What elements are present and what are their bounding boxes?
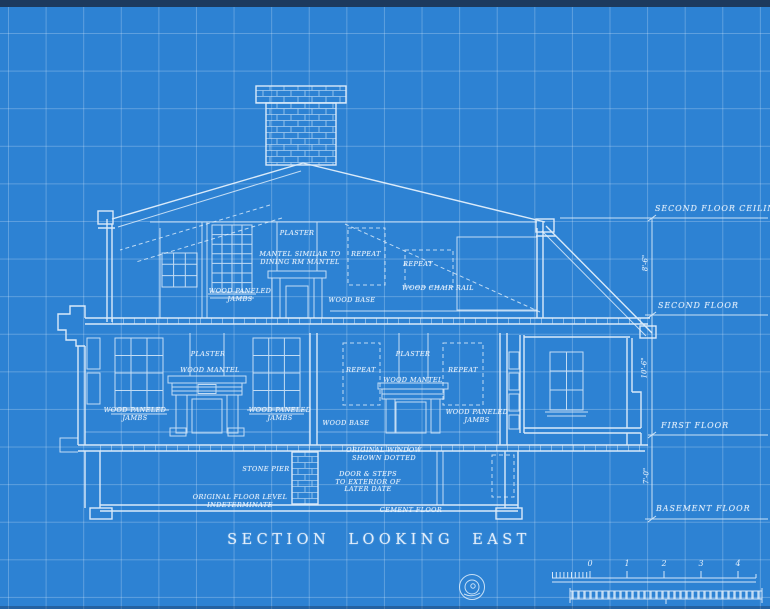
ff-paneled-pilaster-left <box>87 338 100 404</box>
label-ff-repeat-left: REPEAT <box>346 367 376 375</box>
attic-window-small <box>162 253 197 287</box>
label-attic-chair-rail: WOOD CHAIR RAIL <box>402 285 474 293</box>
mid-cornice-profile <box>58 306 85 346</box>
ff-window-left <box>109 338 169 414</box>
label-ff-jambs-left: WOOD PANELED JAMBS <box>104 407 167 422</box>
dimension-basement-height: 7'-0" <box>644 468 651 484</box>
dimension-attic-height: 8'-6" <box>643 255 650 271</box>
scale-bar <box>552 571 762 604</box>
label-first-floor: FIRST FLOOR <box>661 422 729 431</box>
scale-number: 2 <box>661 560 666 568</box>
label-ff-jambs-right: WOOD PANELED JAMBS <box>446 409 509 424</box>
label-ff-plaster-left: PLASTER <box>191 351 226 359</box>
second-floor-line <box>85 318 650 324</box>
label-attic-repeat-left: REPEAT <box>351 251 381 259</box>
scale-number: 4 <box>735 560 740 568</box>
label-ff-repeat-right: REPEAT <box>448 367 478 375</box>
label-ff-plaster-right: PLASTER <box>396 351 431 359</box>
dimension-first-floor-height: 10'-6" <box>642 358 649 379</box>
stamp-emblem <box>460 575 485 600</box>
label-attic-jambs: WOOD PANELED JAMBS <box>209 288 272 303</box>
label-stone-pier: STONE PIER <box>242 466 289 474</box>
label-ff-mantel-left: WOOD MANTEL <box>180 367 239 375</box>
label-original-floor: ORIGINAL FLOOR LEVEL INDETERMINATE <box>193 494 288 509</box>
label-cement-floor: CEMENT FLOOR <box>380 507 442 515</box>
attic-right-panel <box>457 237 537 310</box>
ff-paneled-jamb-right <box>509 352 519 429</box>
chimney <box>256 86 346 165</box>
section-drawing <box>0 0 770 609</box>
ff-wall-right <box>500 333 507 445</box>
label-attic-plaster: PLASTER <box>280 230 315 238</box>
footing-left <box>90 508 112 519</box>
basement-door-frame <box>437 451 443 505</box>
scale-number: 3 <box>698 560 703 568</box>
scale-number: 0 <box>587 560 592 568</box>
ff-partition <box>310 333 317 445</box>
drawing-title: SECTION LOOKING EAST <box>227 532 531 548</box>
label-original-window: ORIGINAL WINDOW SHOWN DOTTED <box>346 447 421 462</box>
basement-dotted-window <box>492 455 514 497</box>
label-second-floor-ceiling: SECOND FLOOR CEILING <box>655 205 770 214</box>
label-ff-jambs-center: WOOD PANELED JAMBS <box>249 407 312 422</box>
label-door-note: DOOR & STEPS TO EXTERIOR OF LATER DATE <box>335 471 400 494</box>
blueprint-canvas: PLASTER MANTEL SIMILAR TO DINING RM MANT… <box>0 0 770 609</box>
wing-window <box>545 352 588 416</box>
roof <box>112 163 652 333</box>
label-second-floor: SECOND FLOOR <box>658 302 739 311</box>
label-ff-wood-base: WOOD BASE <box>323 420 370 428</box>
stone-pier <box>292 452 318 504</box>
attic-wall-left <box>107 219 112 322</box>
label-ff-mantel-right: WOOD MANTEL <box>383 377 442 385</box>
footing-right <box>496 508 522 519</box>
label-attic-wood-base: WOOD BASE <box>329 297 376 305</box>
ff-fireplace-left <box>168 333 246 436</box>
label-basement-floor: BASEMENT FLOOR <box>656 505 751 514</box>
label-attic-repeat-right: REPEAT <box>403 261 433 269</box>
label-attic-mantel-note: MANTEL SIMILAR TO DINING RM MANTEL <box>259 251 340 266</box>
annotation-lines <box>560 215 768 522</box>
ff-wall-left <box>78 346 85 445</box>
ff-window-right <box>247 338 306 414</box>
scale-number: 1 <box>624 560 629 568</box>
basement-floor-line <box>100 505 518 511</box>
